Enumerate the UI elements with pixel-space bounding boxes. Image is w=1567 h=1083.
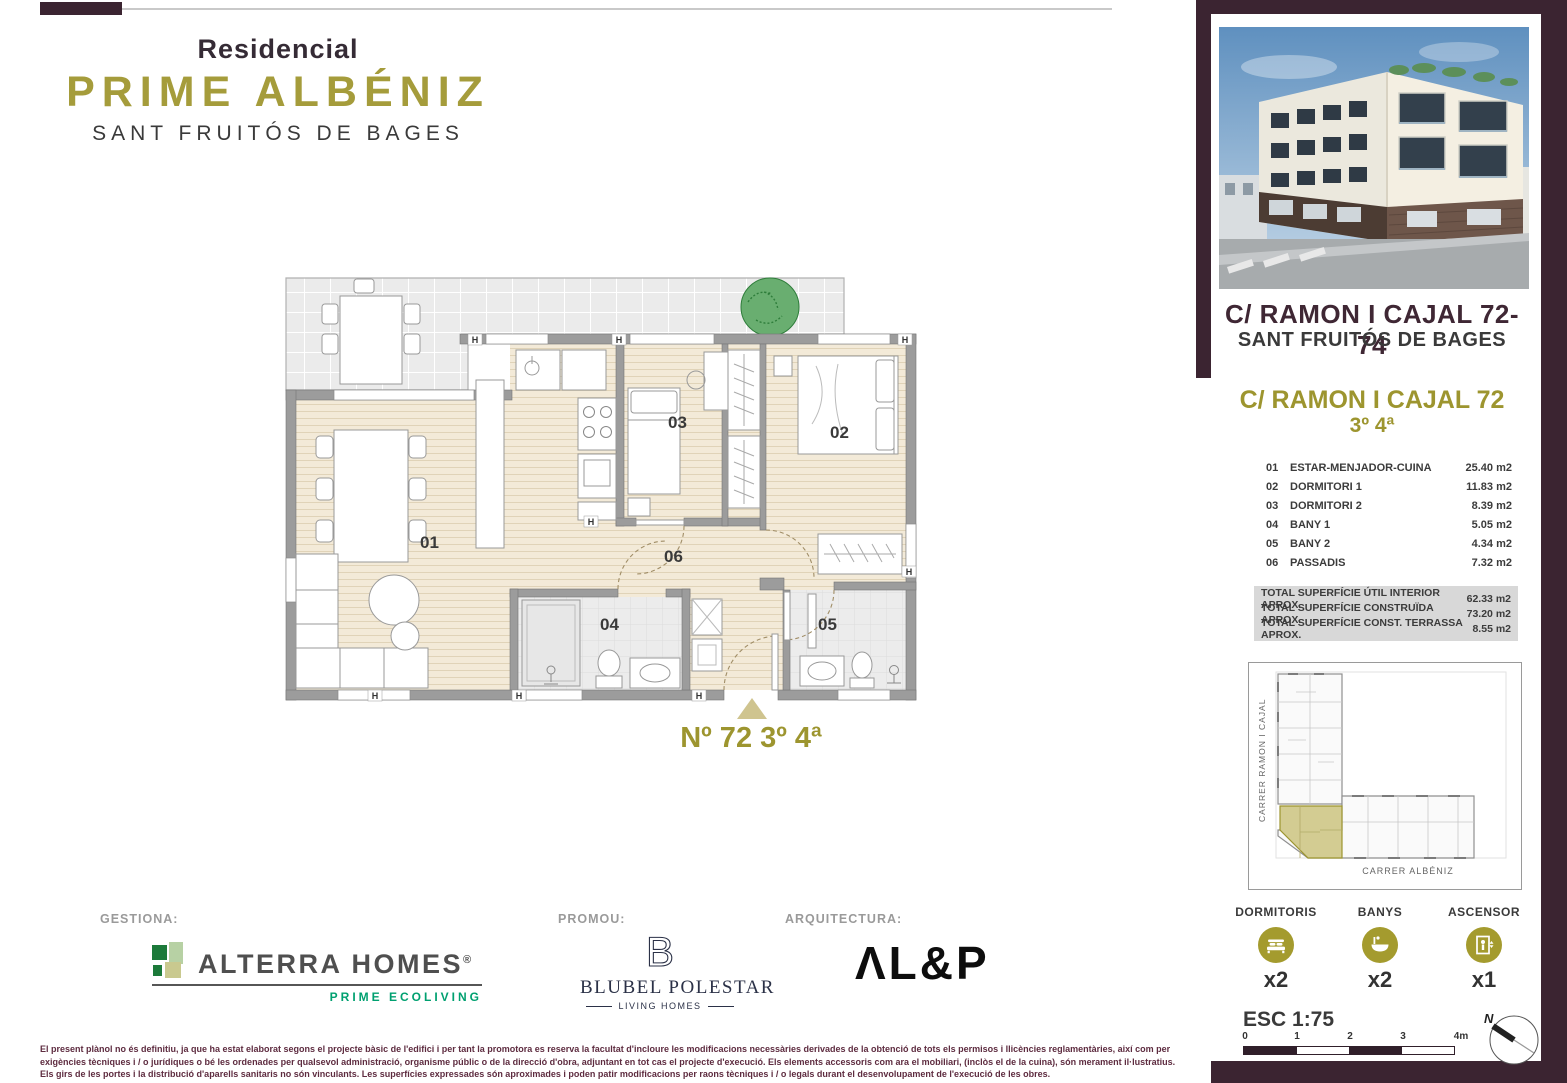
blubel-tagline-text: LIVING HOMES (618, 1001, 701, 1011)
plan-unit-label: Nº 72 3º 4ª (611, 722, 891, 755)
total-value: 73.20 m2 (1467, 608, 1511, 620)
room-area: 11.83 m2 (1466, 481, 1512, 493)
feature-banys: BANYS x2 (1328, 905, 1432, 993)
brand-residencial: Residencial (58, 34, 498, 65)
table-row: 02 DORMITORI 1 11.83 m2 (1266, 477, 1512, 496)
site-plan: CARRER RAMON I CAJAL CARRER ALBÉNIZ (1248, 662, 1522, 890)
svg-text:B: B (646, 928, 674, 974)
arquitectura-label: ARQUITECTURA: (785, 912, 902, 926)
room-name: BANY 2 (1290, 538, 1472, 550)
kitchen-island (476, 380, 504, 548)
feature-count: x2 (1328, 967, 1432, 993)
room-area: 5.05 m2 (1472, 519, 1512, 531)
elevator-icon (1466, 927, 1502, 963)
room-label-03: 03 (668, 413, 687, 432)
svg-text:H: H (372, 691, 379, 701)
room-name: PASSADIS (1290, 557, 1472, 569)
gestiona-label: GESTIONA: (100, 912, 178, 926)
bed-icon (1258, 927, 1294, 963)
blubel-logo: B BLUBEL POLESTAR LIVING HOMES (580, 928, 740, 1011)
scale-segment (1297, 1047, 1350, 1054)
brand-block: Residencial PRIME ALBÉNIZ SANT FRUITÓS D… (58, 34, 498, 146)
room-area: 8.39 m2 (1472, 500, 1512, 512)
unit-floor: 3º 4ª (1211, 414, 1533, 438)
room-num: 03 (1266, 500, 1290, 512)
street-label-bottom: CARRER ALBÉNIZ (1362, 866, 1454, 876)
room-num: 06 (1266, 557, 1290, 569)
room-areas-table: 01 ESTAR-MENJADOR-CUINA 25.40 m2 02 DORM… (1266, 458, 1512, 572)
panel-border-left (1196, 0, 1211, 378)
room-label-06: 06 (664, 547, 683, 566)
alterra-name: ALTERRA HOMES® (198, 949, 474, 980)
room-name: ESTAR-MENJADOR-CUINA (1290, 462, 1466, 474)
floor-plan: H H H H H H H H 01 02 03 04 05 06 (278, 272, 940, 727)
table-row: 04 BANY 1 5.05 m2 (1266, 515, 1512, 534)
room-label-01: 01 (420, 533, 439, 552)
room-label-05: 05 (818, 615, 837, 634)
room-num: 05 (1266, 538, 1290, 550)
bath-icon (1362, 927, 1398, 963)
tagline-dash (586, 1006, 612, 1007)
room-area: 25.40 m2 (1466, 462, 1512, 474)
street-label-left: CARRER RAMON I CAJAL (1257, 699, 1267, 822)
compass-icon: N (1483, 1008, 1543, 1066)
table-row: 05 BANY 2 4.34 m2 (1266, 534, 1512, 553)
svg-text:H: H (906, 567, 913, 577)
scale-tick: 1 (1294, 1031, 1300, 1042)
panel-border-top (1196, 0, 1567, 14)
room-name: BANY 1 (1290, 519, 1472, 531)
room-name: DORMITORI 2 (1290, 500, 1472, 512)
address-line2: SANT FRUITÓS DE BAGES (1211, 329, 1533, 352)
total-label: TOTAL SUPERFÍCIE CONST. TERRASSA APROX. (1261, 617, 1472, 641)
alterra-logo: ALTERRA HOMES® PRIME ECOLIVING (152, 942, 482, 1004)
feature-label: ASCENSOR (1432, 905, 1536, 919)
scale-tick: 2 (1347, 1031, 1353, 1042)
room-num: 02 (1266, 481, 1290, 493)
room-num: 01 (1266, 462, 1290, 474)
building-photo (1219, 27, 1529, 289)
totals-box: TOTAL SUPERFÍCIE ÚTIL INTERIOR APROX. 62… (1254, 586, 1518, 641)
coffee-table (369, 575, 419, 625)
blubel-tagline: LIVING HOMES (580, 1001, 740, 1011)
feature-count: x2 (1224, 967, 1328, 993)
table-row: 03 DORMITORI 2 8.39 m2 (1266, 496, 1512, 515)
room-area: 4.34 m2 (1472, 538, 1512, 550)
scale-label: ESC 1:75 (1243, 1008, 1334, 1032)
scale-tick: 0 (1242, 1031, 1248, 1042)
blubel-b-icon: B (640, 928, 680, 974)
table-row: 01 ESTAR-MENJADOR-CUINA 25.40 m2 (1266, 458, 1512, 477)
feature-count: x1 (1432, 967, 1536, 993)
alp-logo: ΛL&P (855, 936, 990, 990)
svg-text:H: H (516, 691, 523, 701)
scale-segment (1244, 1047, 1297, 1054)
feature-ascensor: ASCENSOR x1 (1432, 905, 1536, 993)
top-accent-bar (40, 2, 122, 15)
promou-label: PROMOU: (558, 912, 625, 926)
blubel-name: BLUBEL POLESTAR (580, 977, 740, 999)
room-label-04: 04 (600, 615, 619, 634)
utility-shaft (692, 599, 722, 671)
total-value: 62.33 m2 (1467, 593, 1511, 605)
brochure-page: Residencial PRIME ALBÉNIZ SANT FRUITÓS D… (0, 0, 1567, 1083)
legal-disclaimer: El present plànol no és definitiu, ja qu… (40, 1043, 1188, 1081)
scale-tick: 4m (1454, 1031, 1468, 1042)
unit-heading: C/ RAMON I CAJAL 72 (1211, 386, 1533, 415)
svg-text:H: H (588, 517, 595, 527)
room-label-02: 02 (830, 423, 849, 442)
brand-title: PRIME ALBÉNIZ (58, 68, 498, 117)
feature-label: DORMITORIS (1224, 905, 1328, 919)
svg-text:H: H (902, 335, 909, 345)
scale-tick: 3 (1400, 1031, 1406, 1042)
total-row: TOTAL SUPERFÍCIE CONST. TERRASSA APROX. … (1261, 621, 1511, 636)
svg-text:H: H (616, 335, 623, 345)
total-value: 8.55 m2 (1472, 623, 1511, 635)
features-row: DORMITORIS x2 BANYS (1224, 905, 1536, 993)
registered-mark: ® (463, 954, 474, 966)
room-name: DORMITORI 1 (1290, 481, 1466, 493)
top-rule-line (122, 8, 1112, 10)
entrance-marker-icon (737, 698, 767, 719)
room-area: 7.32 m2 (1472, 557, 1512, 569)
scale-ticks: 0 1 2 3 4m (1243, 1031, 1473, 1045)
wardrobe-closets (728, 350, 760, 508)
scale-segment (1402, 1047, 1455, 1054)
alterra-tagline: PRIME ECOLIVING (152, 990, 482, 1004)
scale-bar (1243, 1046, 1455, 1055)
table-row: 06 PASSADIS 7.32 m2 (1266, 553, 1512, 572)
svg-text:H: H (696, 691, 703, 701)
room-num: 04 (1266, 519, 1290, 531)
panel-border-right (1541, 0, 1567, 1083)
feature-dormitoris: DORMITORIS x2 (1224, 905, 1328, 993)
compass-n-label: N (1484, 1011, 1494, 1026)
alterra-squares-icon (152, 942, 188, 980)
feature-label: BANYS (1328, 905, 1432, 919)
scale-segment (1349, 1047, 1402, 1054)
side-table (391, 622, 419, 650)
brand-subtitle: SANT FRUITÓS DE BAGES (58, 122, 498, 146)
tagline-dash (708, 1006, 734, 1007)
tree-icon (741, 278, 799, 336)
svg-text:H: H (472, 335, 479, 345)
